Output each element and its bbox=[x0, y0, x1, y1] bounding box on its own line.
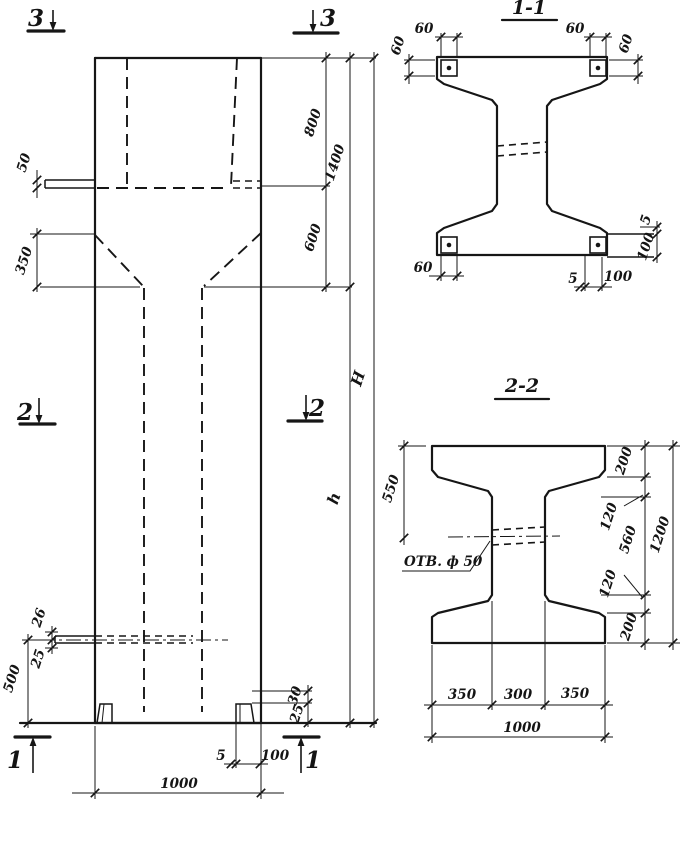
dim-5-side: 5 bbox=[637, 213, 655, 227]
drawing-sheet: 800 600 1400 h H 50 350 26 25 500 30 25 … bbox=[0, 0, 684, 842]
dim-120-top: 120 bbox=[597, 500, 621, 532]
dim-600: 600 bbox=[301, 221, 325, 253]
section-1-1-outline bbox=[437, 57, 607, 255]
marker-1-right-label: 1 bbox=[305, 747, 321, 774]
dim-1000: 1000 bbox=[160, 776, 198, 792]
web-break-bottom bbox=[497, 152, 547, 156]
anchor-dot-bl bbox=[447, 243, 452, 248]
section-marker-3-right: 3 bbox=[294, 5, 338, 33]
marker-1-left-label: 1 bbox=[7, 747, 23, 774]
section-1-1-view: 1-1 60 60 bbox=[388, 0, 662, 291]
hole-hidden-top bbox=[492, 527, 545, 530]
marker-2-right-label: 2 bbox=[308, 395, 325, 422]
right-foot bbox=[236, 704, 254, 723]
marker-3-left-label: 3 bbox=[28, 5, 44, 32]
left-foot-detail bbox=[102, 704, 104, 723]
section-marker-1-left: 1 bbox=[7, 737, 50, 774]
dim-500: 500 bbox=[0, 662, 24, 694]
section-2-2-title: 2-2 bbox=[504, 375, 539, 397]
left-foot bbox=[97, 704, 112, 723]
dim-350-right: 350 bbox=[561, 686, 590, 702]
haunch-hidden-left bbox=[95, 235, 143, 286]
dim-800: 800 bbox=[301, 106, 325, 138]
anchor-dot-tr bbox=[596, 66, 601, 71]
elevation-view: 800 600 1400 h H 50 350 26 25 500 30 25 … bbox=[0, 5, 378, 799]
dim-foot-100: 100 bbox=[261, 748, 290, 764]
dim-h: h bbox=[323, 490, 345, 507]
dim-60-tr-h: 60 bbox=[616, 32, 637, 55]
dim-560: 560 bbox=[616, 523, 640, 555]
hole-centerline bbox=[448, 536, 560, 537]
dim-350-left: 350 bbox=[448, 687, 477, 703]
dim-550: 550 bbox=[379, 472, 403, 504]
dim-foot-5: 5 bbox=[216, 748, 225, 764]
section-1-1-title: 1-1 bbox=[512, 0, 546, 19]
dim-350: 350 bbox=[12, 244, 36, 276]
dim-100-br: 100 bbox=[604, 269, 633, 285]
hole-hidden-bottom bbox=[492, 542, 545, 545]
anchor-dot-tl bbox=[447, 66, 452, 71]
dim-300: 300 bbox=[504, 687, 533, 703]
section-marker-2-left: 2 bbox=[16, 398, 55, 426]
marker-2-left-label: 2 bbox=[16, 399, 33, 426]
dim-200-bottom: 200 bbox=[617, 610, 641, 643]
dim-60-tr-w: 60 bbox=[566, 21, 585, 37]
hole-note: ОТВ. ф 50 bbox=[404, 554, 483, 570]
section-2-2-view: 2-2 ОТВ. ф 50 550 200 120 560 120 200 12… bbox=[379, 375, 680, 743]
section-2-2-outline bbox=[432, 446, 605, 643]
dim-1200: 1200 bbox=[647, 514, 674, 555]
haunch-hidden-right bbox=[204, 233, 261, 286]
section-marker-3-left: 3 bbox=[28, 5, 64, 32]
technical-drawing: 800 600 1400 h H 50 350 26 25 500 30 25 … bbox=[0, 0, 684, 842]
dim-200-top: 200 bbox=[612, 444, 636, 477]
dim-60-tl-h: 60 bbox=[388, 34, 409, 57]
dim-100-side: 100 bbox=[634, 230, 658, 262]
marker-3-right-label: 3 bbox=[320, 5, 336, 32]
dim-60-bl: 60 bbox=[414, 260, 433, 276]
section-marker-1-right: 1 bbox=[284, 737, 321, 774]
anchor-dot-br bbox=[596, 243, 601, 248]
head-hidden-right bbox=[231, 58, 237, 186]
dim-26: 26 bbox=[28, 606, 50, 630]
dim-25: 25 bbox=[27, 647, 48, 671]
dim-1000-section: 1000 bbox=[503, 720, 541, 736]
dim-50: 50 bbox=[14, 151, 35, 174]
dim-5-br: 5 bbox=[568, 271, 577, 287]
dim-60-tl-w: 60 bbox=[415, 21, 434, 37]
web-break-top bbox=[497, 142, 547, 146]
section-marker-2-right: 2 bbox=[288, 395, 325, 422]
